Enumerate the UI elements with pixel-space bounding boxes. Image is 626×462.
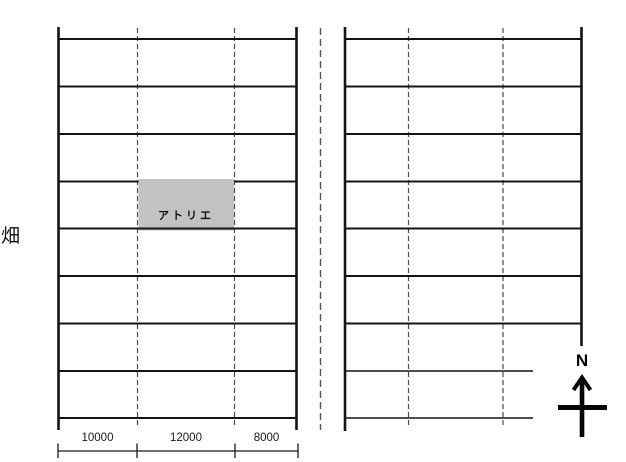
site-plan: 畑 アトリエ 10000 12000 8000 N bbox=[0, 0, 626, 462]
dimension-label-12000: 12000 bbox=[137, 432, 235, 444]
atelier-label: アトリエ bbox=[138, 207, 234, 223]
field-label: 畑 bbox=[1, 221, 20, 248]
left-field-grid-lines bbox=[58, 39, 298, 418]
north-label: N bbox=[567, 351, 597, 371]
north-arrow-icon bbox=[558, 378, 607, 438]
site-plan-drawing bbox=[0, 0, 626, 462]
dimension-label-10000: 10000 bbox=[58, 432, 137, 444]
dimension-label-8000: 8000 bbox=[235, 432, 298, 444]
right-field-grid-lines bbox=[345, 39, 582, 324]
dimension-scale-lines bbox=[58, 444, 298, 459]
right-field-grid-short-lines bbox=[345, 371, 533, 418]
